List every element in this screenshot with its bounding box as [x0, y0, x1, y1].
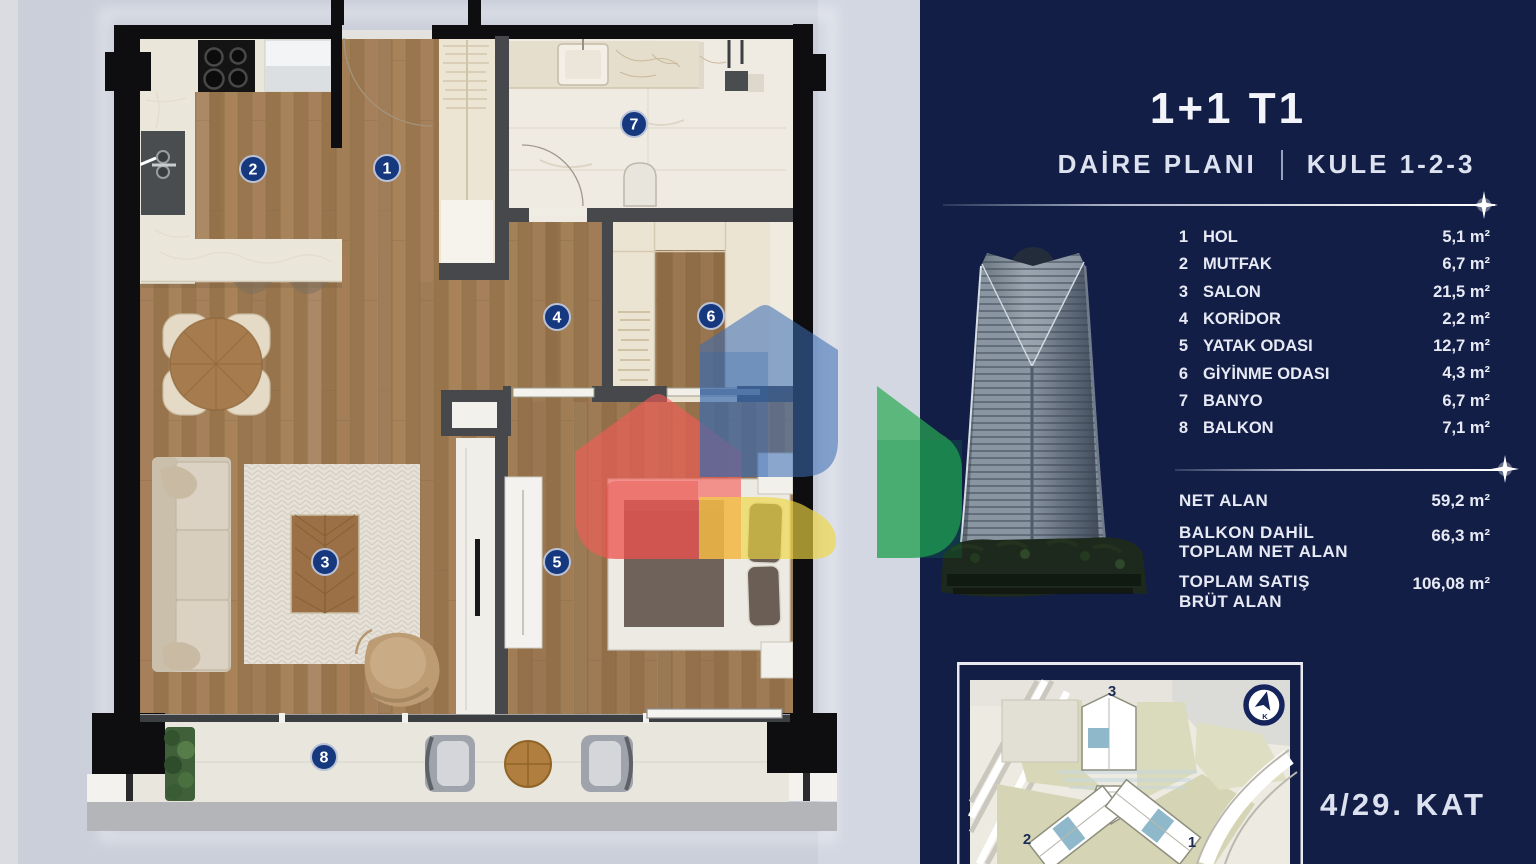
svg-text:5: 5: [553, 555, 562, 572]
svg-text:1: 1: [383, 161, 392, 178]
svg-text:4: 4: [553, 310, 562, 327]
svg-text:8: 8: [320, 750, 329, 767]
svg-text:3: 3: [321, 555, 330, 572]
svg-text:6: 6: [707, 309, 716, 326]
svg-text:2: 2: [249, 162, 258, 179]
svg-text:7: 7: [630, 117, 639, 134]
